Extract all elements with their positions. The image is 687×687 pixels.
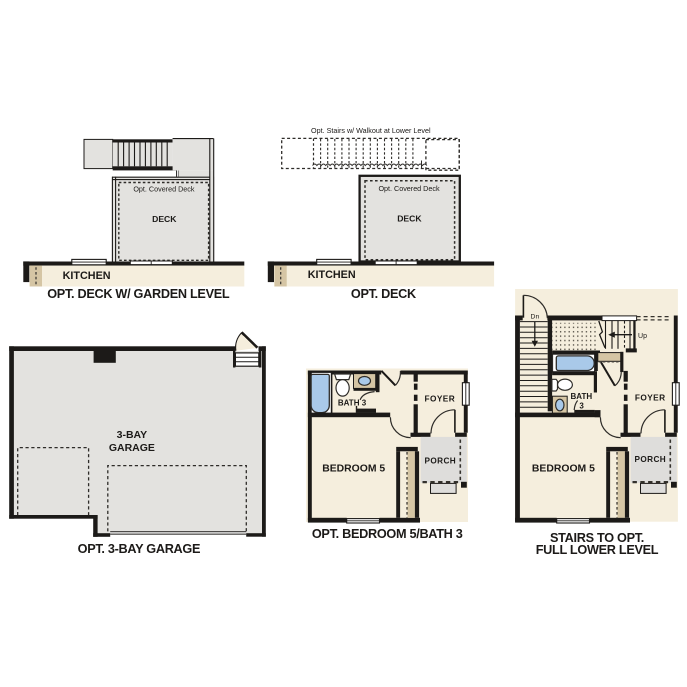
svg-text:PORCH: PORCH (425, 456, 457, 465)
svg-text:OPT. DECK W/ GARDEN LEVEL: OPT. DECK W/ GARDEN LEVEL (47, 287, 230, 301)
svg-text:KITCHEN: KITCHEN (308, 269, 356, 281)
svg-text:OPT. DECK: OPT. DECK (351, 287, 417, 301)
svg-text:FOYER: FOYER (425, 393, 456, 403)
svg-text:3: 3 (579, 401, 584, 410)
svg-text:PORCH: PORCH (635, 455, 667, 464)
svg-text:3-BAY: 3-BAY (117, 429, 148, 441)
svg-text:BATH: BATH (570, 392, 592, 401)
svg-text:FOYER: FOYER (635, 392, 666, 402)
svg-text:DECK: DECK (152, 214, 177, 224)
svg-text:DECK: DECK (397, 214, 422, 224)
svg-text:FULL LOWER LEVEL: FULL LOWER LEVEL (536, 543, 659, 557)
svg-text:Opt. Covered Deck: Opt. Covered Deck (378, 184, 440, 193)
svg-text:GARAGE: GARAGE (109, 442, 155, 454)
svg-text:Dn: Dn (531, 314, 540, 321)
svg-text:BATH 3: BATH 3 (338, 399, 367, 408)
svg-text:BEDROOM 5: BEDROOM 5 (322, 463, 385, 474)
svg-text:KITCHEN: KITCHEN (63, 270, 111, 282)
svg-text:BEDROOM 5: BEDROOM 5 (532, 463, 595, 474)
svg-text:Opt. Covered Deck: Opt. Covered Deck (133, 185, 195, 194)
svg-text:Opt. Stairs w/ Walkout at Lowe: Opt. Stairs w/ Walkout at Lower Level (311, 126, 431, 135)
svg-text:Up: Up (638, 333, 647, 340)
svg-text:OPT. BEDROOM 5/BATH 3: OPT. BEDROOM 5/BATH 3 (312, 527, 463, 541)
svg-text:OPT. 3-BAY GARAGE: OPT. 3-BAY GARAGE (78, 542, 201, 556)
